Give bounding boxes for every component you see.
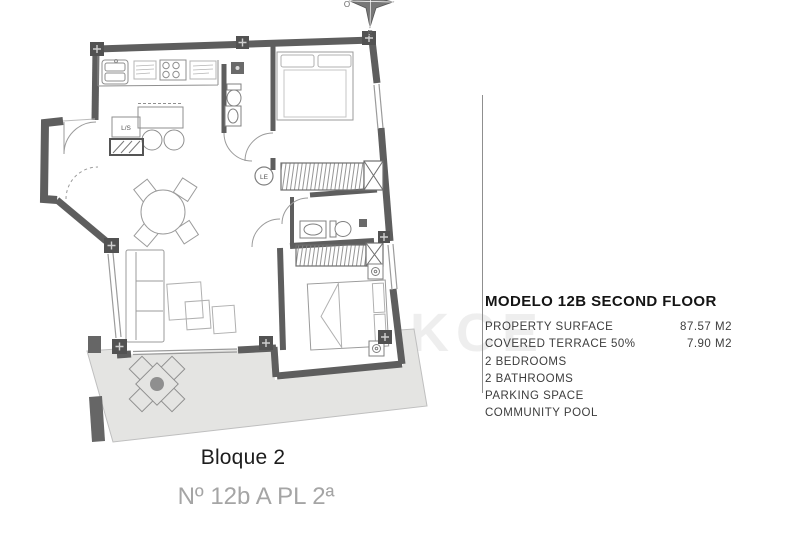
property-surface-value: 87.57 M2 (680, 319, 732, 336)
model-title: MODELO 12B SECOND FLOOR (485, 293, 732, 310)
info-row-property-surface: PROPERTY SURFACE 87.57 M2 (485, 319, 732, 336)
bedroom-1 (277, 52, 353, 120)
floor-plan: T TEKCE (0, 0, 800, 533)
info-row-pool: COMMUNITY POOL (485, 405, 732, 422)
unit-label: Nº 12b A PL 2ª (156, 483, 356, 511)
wardrobe-2 (296, 243, 383, 266)
linen-closet-marker: LE (255, 167, 273, 185)
sink-2 (300, 221, 326, 238)
bathrooms-label: 2 BATHROOMS (485, 371, 573, 388)
parking-label: PARKING SPACE (485, 388, 584, 405)
block-label: Bloque 2 (143, 446, 343, 470)
toilet-1 (227, 84, 241, 106)
sink-1 (225, 106, 241, 126)
terrace-dining-set (129, 356, 184, 411)
compass-west-label: O (344, 0, 350, 9)
toilet-2 (330, 221, 351, 237)
property-surface-label: PROPERTY SURFACE (485, 319, 613, 336)
wardrobe-1 (281, 161, 383, 190)
bedrooms-label: 2 BEDROOMS (485, 354, 567, 371)
info-panel: MODELO 12B SECOND FLOOR PROPERTY SURFACE… (485, 293, 732, 423)
sofa (126, 250, 164, 342)
laundry-label: L/S (121, 125, 131, 132)
covered-terrace-value: 7.90 M2 (687, 336, 732, 353)
pool-label: COMMUNITY POOL (485, 405, 598, 422)
info-row-bedrooms: 2 BEDROOMS (485, 354, 732, 371)
covered-terrace-label: COVERED TERRACE 50% (485, 336, 636, 353)
info-row-bathrooms: 2 BATHROOMS (485, 371, 732, 388)
panel-divider (482, 95, 483, 393)
bedroom-2 (296, 243, 389, 356)
bed-2 (307, 280, 388, 350)
linen-label: LE (260, 174, 269, 181)
compass-icon: O E (344, 0, 393, 38)
compass-east-label: E (367, 29, 372, 38)
info-row-covered-terrace: COVERED TERRACE 50% 7.90 M2 (485, 336, 732, 353)
info-row-parking: PARKING SPACE (485, 388, 732, 405)
